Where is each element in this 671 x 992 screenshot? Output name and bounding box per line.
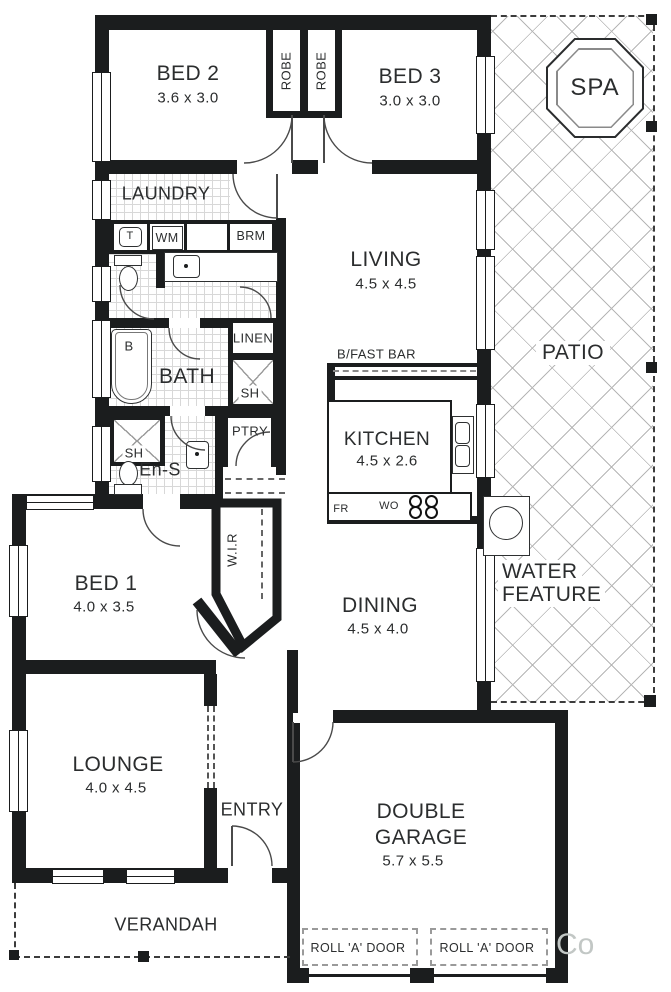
roll-door-right-label: ROLL 'A' DOOR [440,941,535,955]
bath-door-arc [169,328,200,359]
patio-label: PATIO [536,341,610,365]
garage-door-arc [293,722,333,762]
watermark: Co [556,928,594,962]
lounge-label: LOUNGE [72,753,163,777]
wall-oven-label: WO [379,500,399,512]
washing-machine-label: WM [155,231,178,245]
bed2-label: BED 2 [157,62,220,86]
wir-label: W.I.R [225,533,240,567]
laundry-door-arc [233,174,277,218]
wc-door-arc [120,285,154,319]
fridge-label: FR [333,503,348,515]
bed3-label: BED 3 [379,65,442,89]
bath-tub-label: B [124,339,133,354]
ensuite-label: En-S [139,460,181,481]
broom-cupboard-label: BRM [237,229,266,243]
garage-dims: 5.7 x 5.5 [382,853,443,870]
garage-label-line1: DOUBLE [377,800,466,824]
robe-right-label: ROBE [314,52,329,90]
breakfast-bar-label: B/FAST BAR [337,347,416,362]
water-feature-line2: FEATURE [498,583,605,607]
water-feature-line1: WATER [498,560,582,584]
bath-shower-label: SH [239,386,262,401]
wir-walls [216,503,277,646]
robe-left-label: ROBE [279,52,294,90]
bed2-door-arc [244,115,292,163]
dining-label: DINING [342,594,418,618]
laundry-tub-label: T [126,230,133,242]
entry-label: ENTRY [221,800,284,821]
garage-label-line2: GARAGE [375,826,467,850]
ens-shower-label: SH [123,446,146,461]
wir-shelf-dash [261,509,263,599]
linen-label: LINEN [233,331,273,346]
kitchen-dims: 4.5 x 2.6 [356,453,417,470]
roll-door-left-label: ROLL 'A' DOOR [311,941,406,955]
laundry-label: LAUNDRY [122,184,211,205]
bed1-door-arc [143,509,180,546]
bed3-door-arc [324,115,372,163]
hall-door-arc [240,287,271,318]
verandah-label: VERANDAH [114,915,217,936]
bed1-label: BED 1 [75,572,138,596]
spa-label: SPA [570,74,619,102]
bed2-dims: 3.6 x 3.0 [157,90,218,107]
bath-label: BATH [159,365,215,389]
front-door-arc [232,826,272,866]
bed3-dims: 3.0 x 3.0 [379,93,440,110]
ens-door-arc [171,416,205,450]
door-swings-overlay [0,0,671,992]
bed1-dims: 4.0 x 3.5 [73,599,134,616]
kitchen-label: KITCHEN [344,429,430,451]
living-dims: 4.5 x 4.5 [355,276,416,293]
lounge-dims: 4.0 x 4.5 [85,780,146,797]
floor-plan: BED 2 3.6 x 3.0 ROBE ROBE BED 3 3.0 x 3.… [0,0,671,992]
pantry-label: PTRY [232,424,268,439]
living-label: LIVING [350,248,421,272]
dining-dims: 4.5 x 4.0 [347,621,408,638]
